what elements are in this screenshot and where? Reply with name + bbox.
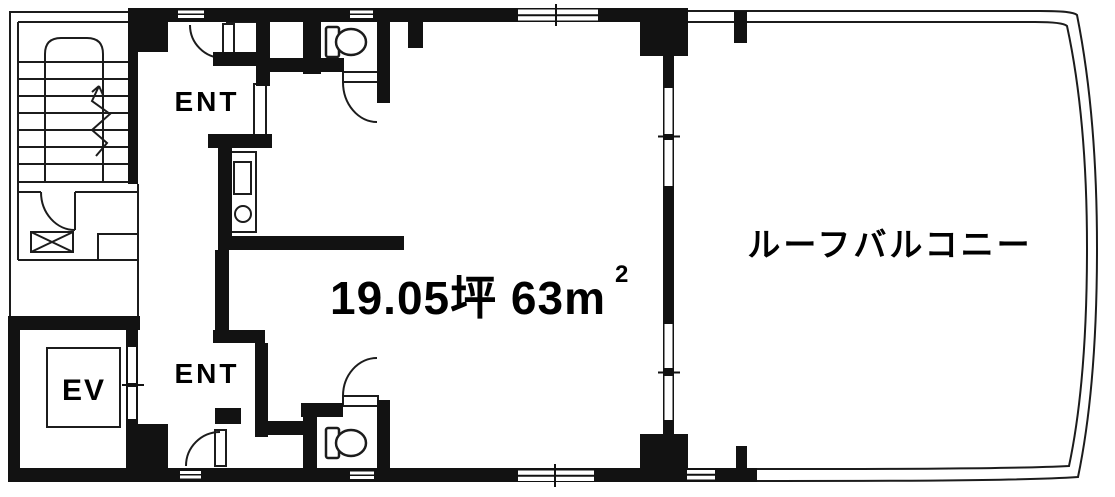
wall-segment-toilet — [377, 400, 390, 470]
wall-segment — [128, 8, 168, 52]
lower-entrance-door-leaf — [215, 430, 226, 466]
upper-entrance-label: ENT — [175, 86, 240, 117]
roof-balcony-label: ルーフバルコニー — [747, 226, 1032, 263]
vent-slot — [178, 11, 204, 14]
window-divider — [665, 324, 673, 368]
elevator-door-slot — [128, 347, 136, 383]
area-superscript: 2 — [615, 261, 628, 288]
wall-segment-balcony-stub — [736, 446, 747, 471]
hall-door-leaf — [254, 84, 266, 136]
vent-slot — [350, 15, 373, 18]
wall-segment — [256, 8, 270, 86]
area-label: 19.05坪 63m — [330, 272, 606, 324]
window-divider — [665, 88, 673, 134]
wall-segment-stair — [128, 50, 138, 184]
wall-segment-balcony-stub — [734, 11, 747, 43]
wall-segment — [408, 22, 423, 48]
wall-segment — [262, 58, 344, 72]
upper-toilet-bowl — [336, 29, 366, 55]
wall-segment — [266, 421, 308, 435]
vent-slot — [180, 476, 201, 479]
wall-segment — [208, 134, 272, 148]
elevator-door-slot — [128, 387, 136, 419]
floor-plan-page: ENT ENT EV 19.05坪 63m 2 ルーフバルコニー — [0, 0, 1115, 497]
upper-toilet-fixture — [326, 27, 366, 57]
elevator-label: EV — [62, 374, 106, 407]
lower-entrance-label: ENT — [175, 358, 240, 389]
wall-segment-ev — [8, 316, 140, 330]
wall-segment-toilet — [301, 403, 343, 417]
wall-segment-divider-top — [640, 8, 688, 56]
lower-toilet-bowl — [336, 430, 366, 456]
wall-segment-kitchen — [218, 138, 232, 250]
window-divider — [665, 140, 673, 186]
kitchen-counter — [230, 152, 256, 232]
vent-slot — [178, 15, 204, 18]
wall-segment-ev — [8, 330, 20, 482]
wall-segment-bottom — [8, 468, 757, 482]
lower-toilet-door-leaf — [343, 396, 378, 406]
vent-slot — [350, 476, 374, 479]
upper-toilet-door-leaf — [343, 72, 378, 82]
wall-segment — [215, 408, 241, 424]
wall-segment — [213, 52, 263, 66]
vent-slot — [350, 472, 374, 475]
floor-plan-canvas: ENT ENT EV 19.05坪 63m 2 ルーフバルコニー — [0, 0, 1115, 497]
vent-slot — [180, 471, 201, 474]
wall-segment-toilet — [303, 417, 317, 468]
wall-segment — [215, 250, 229, 330]
window-divider — [665, 376, 673, 420]
wall-segment — [126, 424, 168, 470]
lower-toilet-fixture — [326, 428, 366, 458]
vent-slot — [350, 11, 373, 14]
wall-segment-spur — [218, 236, 404, 250]
wall-segment — [213, 330, 265, 343]
wall-segment — [377, 8, 390, 103]
